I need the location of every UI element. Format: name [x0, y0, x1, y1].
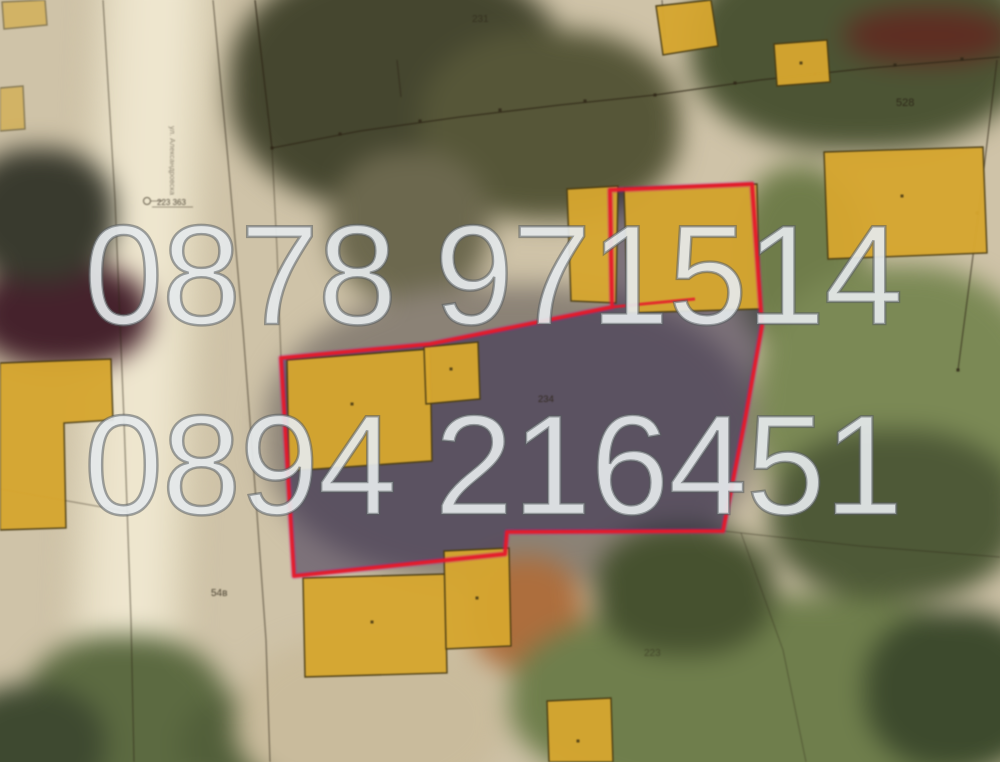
- survey-point: [498, 108, 501, 111]
- building-footprint: [656, 0, 718, 55]
- cadastral-line: [272, 57, 1000, 148]
- map-label: 528: [896, 97, 914, 109]
- survey-point: [733, 81, 736, 84]
- cadastral-overlay: 52854в231223234223 363ул. Александровска: [0, 0, 1000, 762]
- survey-point: [960, 57, 963, 60]
- survey-point: [653, 93, 656, 96]
- building-number-dot: [476, 597, 479, 600]
- aerial-cadastral-map: 52854в231223234223 363ул. Александровска…: [0, 0, 1000, 762]
- survey-point: [583, 99, 586, 102]
- cadastral-line: [213, 0, 270, 762]
- map-label: 223: [644, 648, 661, 659]
- map-label: ул. Александровска: [168, 126, 177, 196]
- cadastral-line: [741, 533, 806, 762]
- building-footprint: [0, 86, 25, 131]
- map-label: 231: [472, 14, 489, 25]
- building-number-dot: [577, 740, 580, 743]
- building-footprint: [547, 698, 613, 762]
- survey-point: [956, 368, 959, 371]
- map-label: 54в: [211, 588, 227, 599]
- survey-point: [418, 119, 421, 122]
- building-footprint: [2, 0, 47, 29]
- building-footprint: [303, 574, 447, 677]
- building-number-dot: [800, 62, 803, 65]
- cadastral-line: [255, 0, 272, 148]
- cadastral-line: [397, 60, 401, 97]
- watermark-phone-2: 0894 216451: [84, 395, 902, 537]
- survey-point: [338, 132, 341, 135]
- survey-point: [893, 63, 896, 66]
- building-number-dot: [371, 621, 374, 624]
- watermark-phone-1: 0878 971514: [84, 205, 902, 347]
- survey-point: [270, 146, 273, 149]
- building-number-dot: [450, 368, 453, 371]
